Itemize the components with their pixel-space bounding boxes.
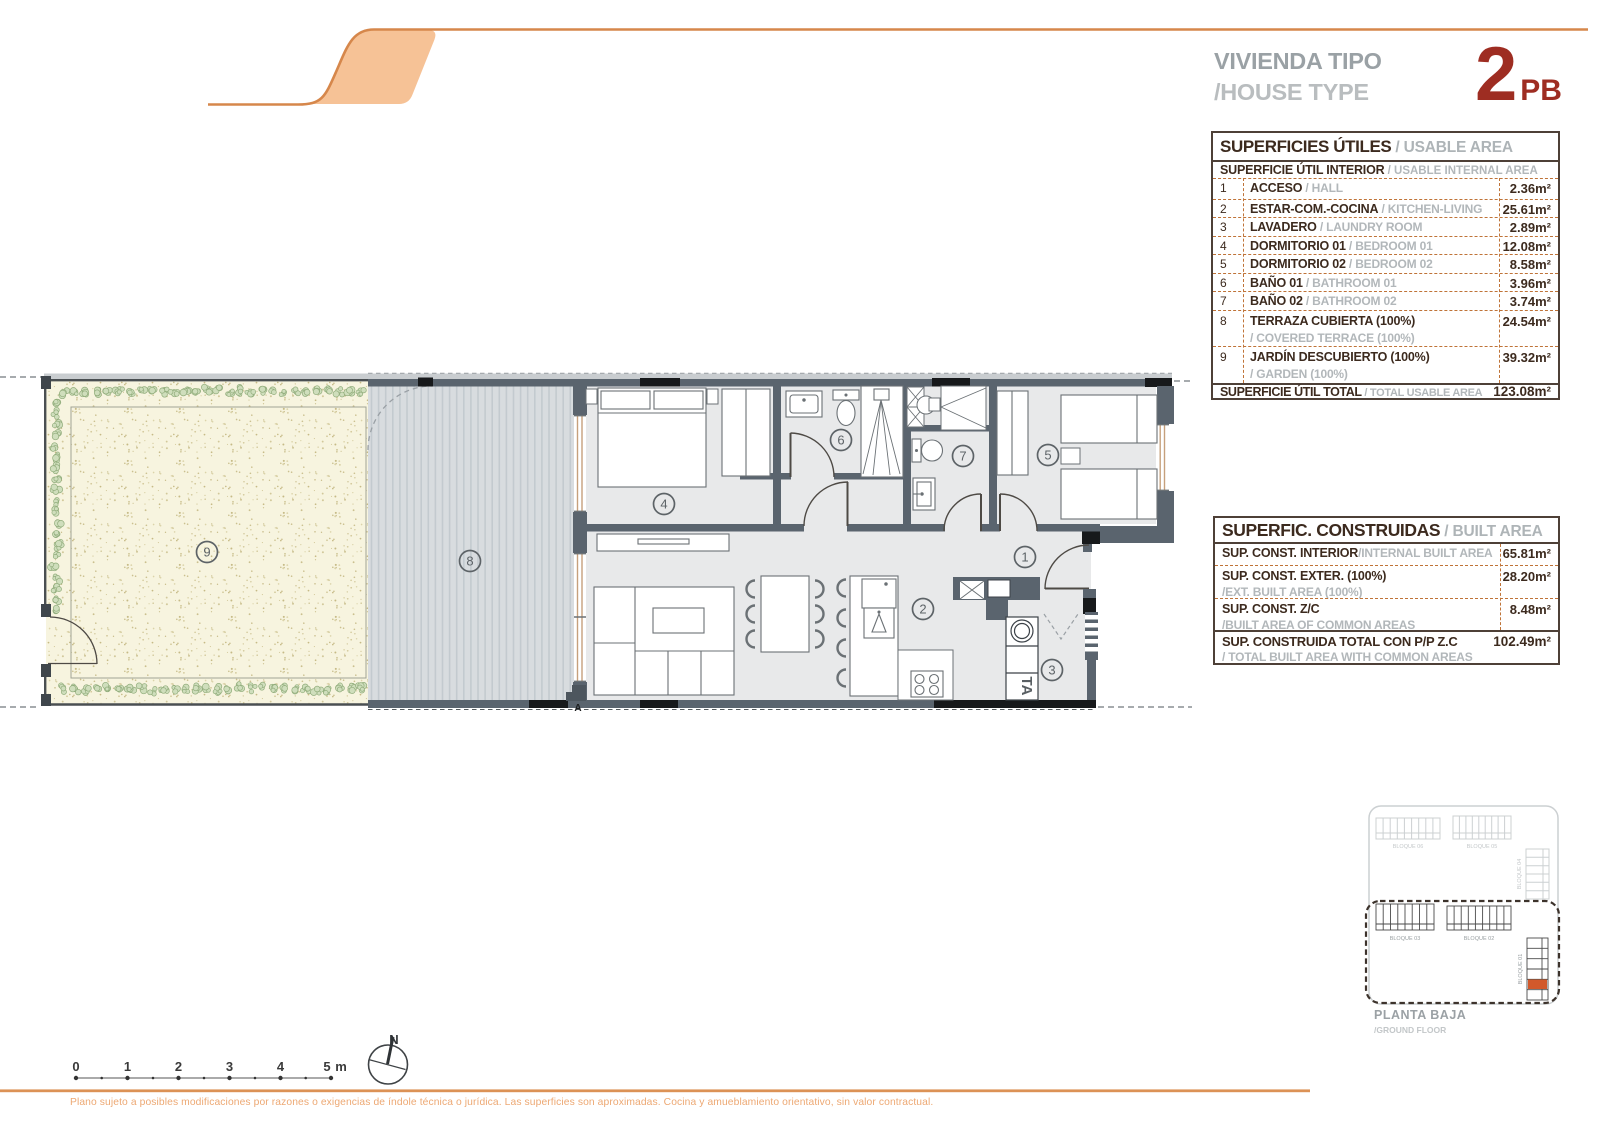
svg-text:4: 4 [660,497,667,512]
svg-text:0: 0 [72,1059,79,1074]
svg-text:1: 1 [124,1059,131,1074]
svg-text:BLOQUE 01: BLOQUE 01 [1518,954,1524,985]
svg-text:A: A [574,703,581,714]
svg-text:8: 8 [466,554,473,569]
svg-text:TA: TA [1018,677,1035,696]
svg-text:BLOQUE 05: BLOQUE 05 [1467,844,1498,850]
svg-text:N: N [389,1032,398,1047]
svg-text:5: 5 [1044,448,1051,463]
svg-text:2: 2 [919,602,926,617]
svg-text:5: 5 [323,1059,330,1074]
svg-text:2: 2 [175,1059,182,1074]
svg-text:BLOQUE 02: BLOQUE 02 [1464,936,1495,942]
svg-text:7: 7 [959,449,966,464]
svg-text:3: 3 [226,1059,233,1074]
svg-text:BLOQUE 03: BLOQUE 03 [1390,936,1421,942]
svg-text:1: 1 [1021,550,1028,565]
svg-text:m: m [335,1059,347,1074]
svg-text:6: 6 [837,433,844,448]
svg-text:BLOQUE 06: BLOQUE 06 [1393,844,1424,850]
svg-text:9: 9 [203,545,210,560]
svg-text:4: 4 [277,1059,285,1074]
svg-text:BLOQUE 04: BLOQUE 04 [1517,859,1523,890]
svg-text:3: 3 [1048,663,1055,678]
